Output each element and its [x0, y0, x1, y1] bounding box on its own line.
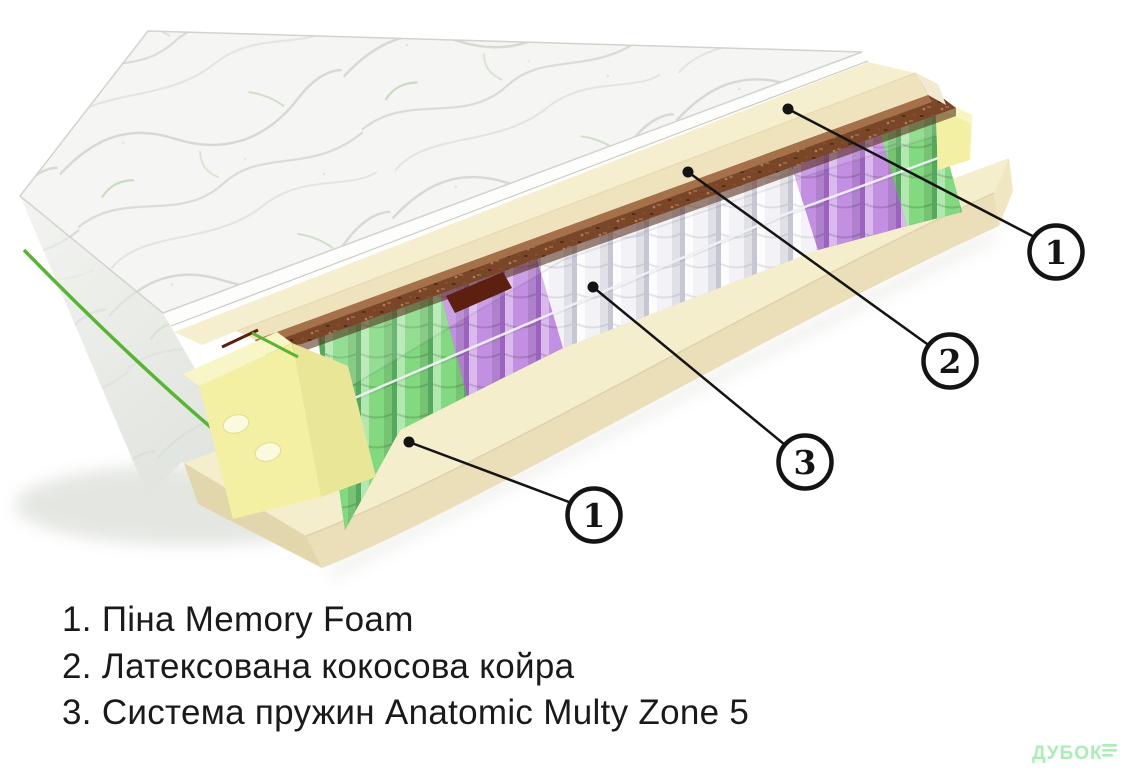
watermark-tagline-bar — [1102, 744, 1117, 747]
callout-dot — [683, 167, 694, 178]
watermark-tagline-bar — [1102, 749, 1117, 752]
legend-item-springs: 3. Система пружин Anatomic Multy Zone 5 — [62, 690, 749, 737]
callout-2-number: 2 — [939, 342, 962, 381]
callout-dot — [588, 282, 599, 293]
legend-item-memory-foam: 1. Піна Memory Foam — [62, 597, 749, 644]
callout-1b-number: 1 — [583, 496, 606, 535]
callout-dot — [404, 437, 415, 448]
legend-item-coir: 2. Латексована кокосова койра — [62, 644, 749, 691]
product-diagram-page: 1 2 3 1 ДУБОК 1. Піна Memory Foam 2. Лат… — [0, 0, 1130, 773]
callout-1-number: 1 — [1045, 233, 1068, 272]
callout-dot — [783, 104, 794, 115]
layer-legend: 1. Піна Memory Foam 2. Латексована кокос… — [62, 597, 749, 737]
callout-3-number: 3 — [794, 443, 817, 482]
watermark-text: ДУБОК — [1032, 743, 1103, 764]
watermark-tagline-bar — [1102, 754, 1113, 757]
watermark-logo: ДУБОК — [1032, 743, 1117, 764]
